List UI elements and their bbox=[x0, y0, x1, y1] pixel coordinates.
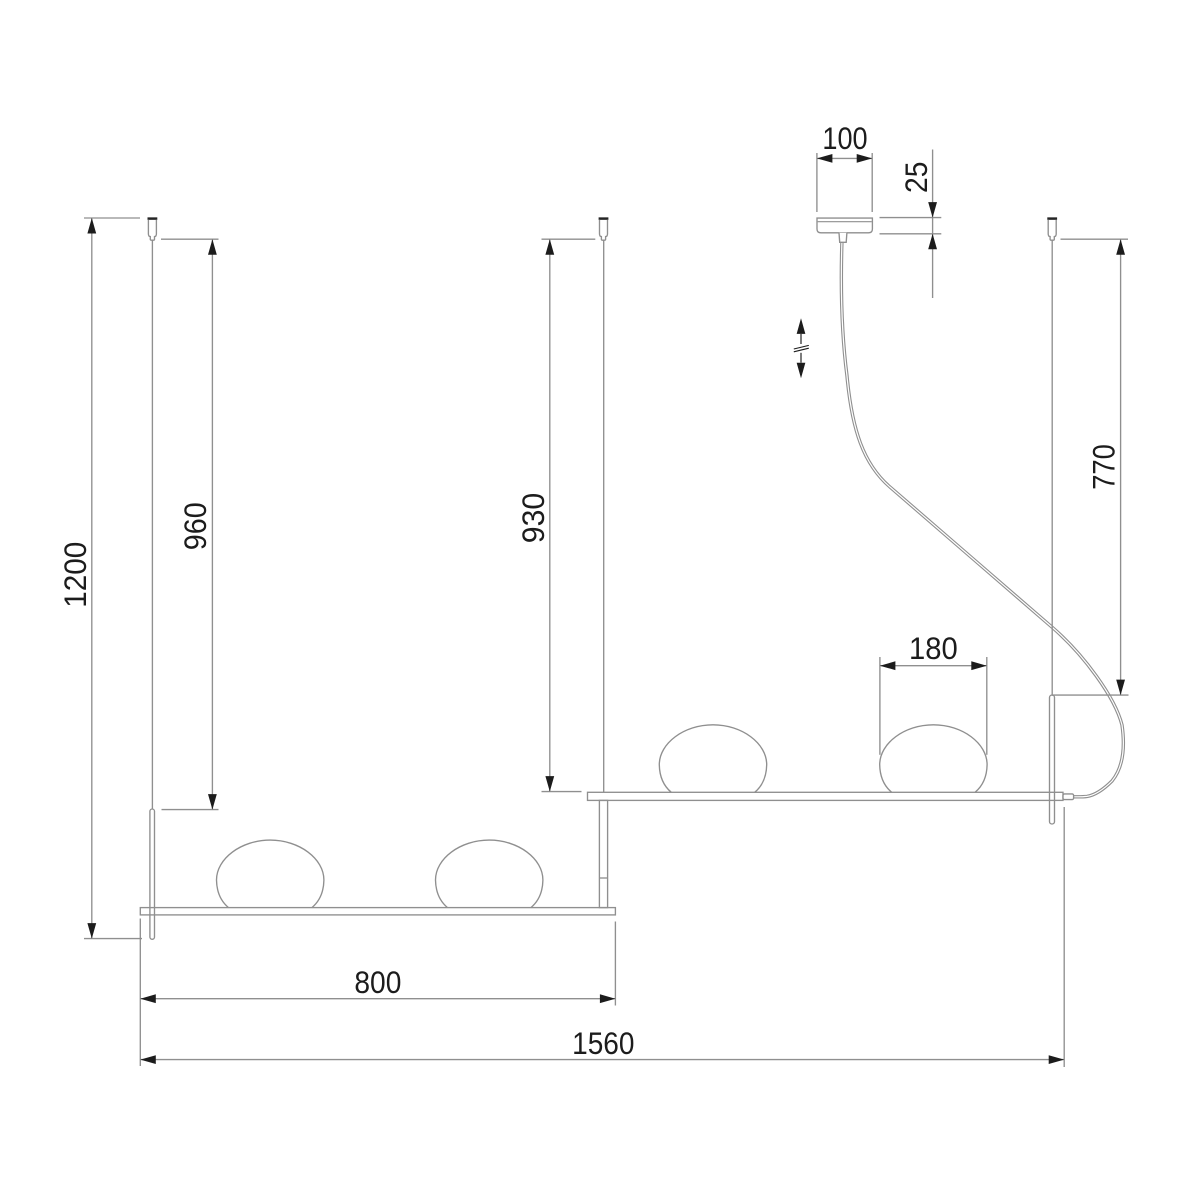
svg-text:180: 180 bbox=[909, 630, 958, 666]
svg-text:1560: 1560 bbox=[572, 1025, 634, 1061]
svg-text:100: 100 bbox=[822, 120, 867, 156]
svg-text:800: 800 bbox=[354, 964, 401, 1000]
svg-text:1200: 1200 bbox=[57, 542, 93, 608]
svg-text:960: 960 bbox=[177, 502, 213, 550]
svg-text:770: 770 bbox=[1086, 444, 1122, 490]
svg-text:930: 930 bbox=[515, 493, 551, 544]
svg-text:25: 25 bbox=[898, 162, 934, 193]
